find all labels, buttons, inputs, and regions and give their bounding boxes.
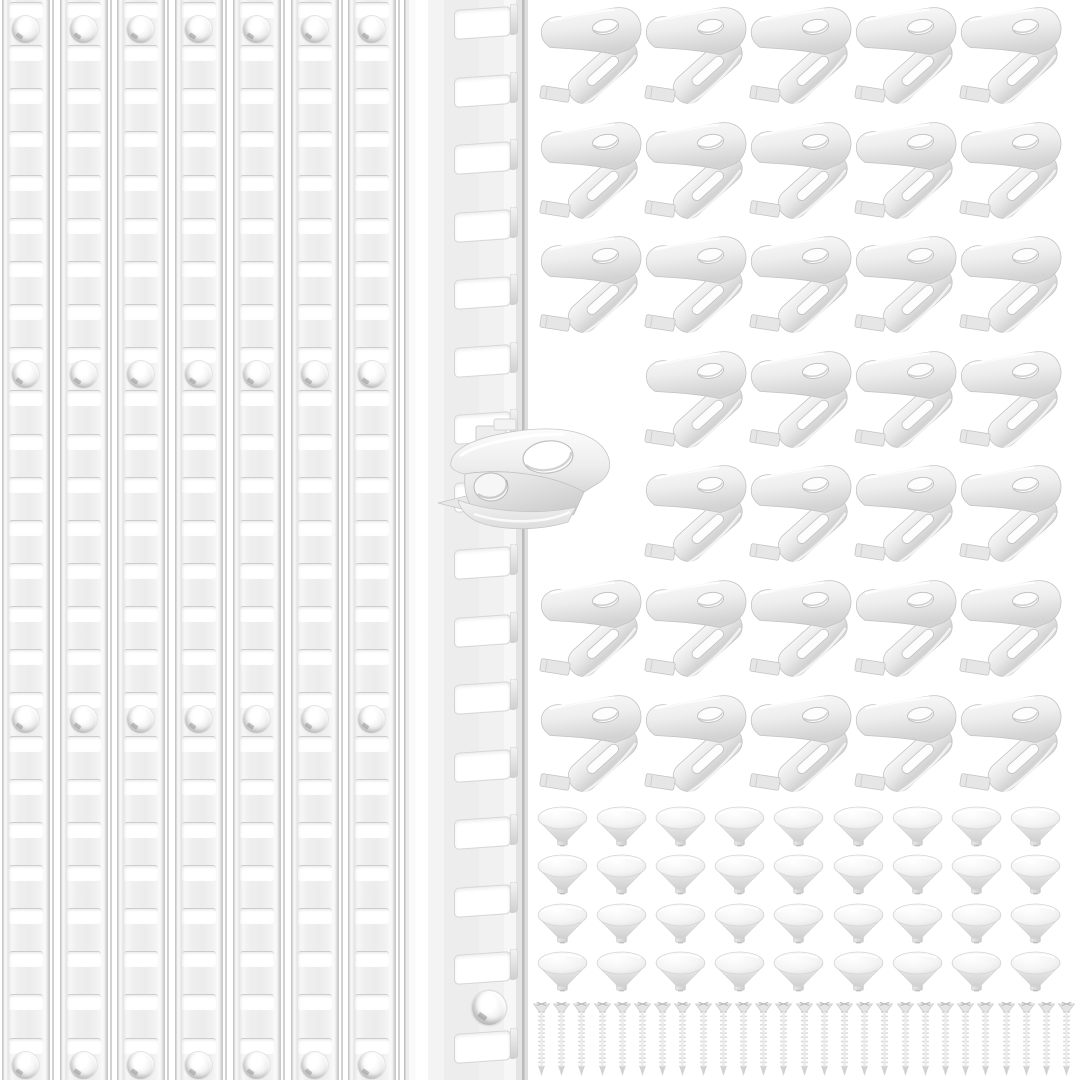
strip-slot xyxy=(67,736,101,751)
screw xyxy=(714,1000,733,1078)
shelf-clip xyxy=(956,577,1064,689)
strip-slot xyxy=(298,994,332,1009)
screw xyxy=(552,1000,571,1078)
strip-slot xyxy=(9,45,43,60)
strip-slot xyxy=(67,822,101,837)
strip-slot xyxy=(9,779,43,794)
screw xyxy=(593,1000,612,1078)
strip-slot xyxy=(9,175,43,190)
strip-slot xyxy=(9,390,43,405)
pin-support xyxy=(1008,903,1063,947)
strip-slot xyxy=(9,994,43,1009)
shelf-clip xyxy=(851,233,959,345)
screw xyxy=(613,1000,632,1078)
strip-slot xyxy=(124,994,158,1009)
strip-slot xyxy=(124,779,158,794)
strip-slot xyxy=(9,88,43,103)
strip-slot xyxy=(124,865,158,880)
strip-slot xyxy=(124,304,158,319)
pin-support xyxy=(1008,806,1063,850)
strip-slot xyxy=(182,908,216,923)
strip-slot xyxy=(124,2,158,17)
strip-slot xyxy=(67,1038,101,1053)
featured-strip-slot xyxy=(454,344,511,378)
strip-slot xyxy=(355,606,389,621)
strip-slot xyxy=(9,649,43,664)
strip-screw-hole xyxy=(243,361,270,388)
screw xyxy=(896,1000,915,1078)
strip-slot xyxy=(240,434,274,449)
strip-screw-hole xyxy=(358,706,385,733)
strip-slot xyxy=(67,261,101,276)
strip-slot xyxy=(9,2,43,17)
strip-slot xyxy=(298,2,332,17)
screw xyxy=(633,1000,652,1078)
featured-strip-slot xyxy=(454,749,511,783)
strip-slot xyxy=(355,649,389,664)
strip-slot xyxy=(9,1038,43,1053)
strip-slot xyxy=(67,175,101,190)
strip-slot xyxy=(182,390,216,405)
strip-slot xyxy=(355,477,389,492)
strip-slot xyxy=(298,563,332,578)
strip-slot xyxy=(355,951,389,966)
featured-pilaster-strip xyxy=(404,0,528,1080)
strip-slot xyxy=(182,822,216,837)
strip-slot xyxy=(240,131,274,146)
screw xyxy=(1057,1000,1076,1078)
shelf-clip xyxy=(956,233,1064,345)
strip-slot xyxy=(298,649,332,664)
strip-slot xyxy=(182,994,216,1009)
strip-slot xyxy=(124,45,158,60)
strip-slot xyxy=(182,779,216,794)
pin-support xyxy=(831,951,886,995)
strip-slot xyxy=(298,261,332,276)
strip-slot xyxy=(182,347,216,362)
pin-support xyxy=(535,854,590,898)
shelf-clip xyxy=(851,692,959,804)
featured-strip-slot xyxy=(454,546,511,580)
screw xyxy=(976,1000,995,1078)
strip-slot xyxy=(124,218,158,233)
pin-support xyxy=(653,854,708,898)
strip-slot xyxy=(182,520,216,535)
strip-slot xyxy=(355,45,389,60)
screw xyxy=(795,1000,814,1078)
screw xyxy=(572,1000,591,1078)
pin-support xyxy=(535,903,590,947)
strip-slot xyxy=(124,434,158,449)
shelf-clip xyxy=(641,462,749,574)
strip-slot xyxy=(67,45,101,60)
strip-slot xyxy=(124,692,158,707)
strip-slot xyxy=(240,649,274,664)
screw xyxy=(916,1000,935,1078)
strip-slot xyxy=(355,2,389,17)
shelf-clip xyxy=(536,4,644,116)
strip-slot xyxy=(9,951,43,966)
pilaster-strip xyxy=(2,0,50,1080)
strip-screw-hole xyxy=(185,706,212,733)
strip-slot xyxy=(355,218,389,233)
strip-slot xyxy=(240,261,274,276)
strip-slot xyxy=(298,520,332,535)
strip-slot xyxy=(240,994,274,1009)
pin-support xyxy=(594,806,649,850)
shelf-clip xyxy=(641,119,749,231)
shelf-clip xyxy=(746,119,854,231)
shelf-clip xyxy=(641,233,749,345)
strip-slot xyxy=(182,865,216,880)
strip-slot xyxy=(298,131,332,146)
strip-slot xyxy=(355,347,389,362)
strip-screw-hole xyxy=(301,1052,328,1079)
strip-slot xyxy=(124,563,158,578)
pin-support xyxy=(712,903,767,947)
strip-slot xyxy=(124,175,158,190)
pin-support xyxy=(890,903,945,947)
strip-screw-hole xyxy=(243,16,270,43)
strip-screw-hole xyxy=(243,706,270,733)
featured-strip-screw-hole xyxy=(472,991,506,1025)
strip-slot xyxy=(355,779,389,794)
strip-slot xyxy=(240,736,274,751)
shelf-clip xyxy=(851,4,959,116)
shelf-clip xyxy=(746,692,854,804)
shelf-clip xyxy=(851,462,959,574)
pin-support xyxy=(712,854,767,898)
shelf-clip xyxy=(536,692,644,804)
pilaster-strip xyxy=(60,0,108,1080)
strip-slot xyxy=(355,563,389,578)
shelf-clip xyxy=(746,4,854,116)
screw xyxy=(835,1000,854,1078)
shelf-clip xyxy=(956,4,1064,116)
strip-slot xyxy=(298,390,332,405)
strip-slot xyxy=(9,606,43,621)
strip-slot xyxy=(240,347,274,362)
strip-slot xyxy=(240,218,274,233)
strip-slot xyxy=(9,736,43,751)
screw xyxy=(532,1000,551,1078)
shelf-clip xyxy=(641,348,749,460)
strip-slot xyxy=(355,736,389,751)
strip-slot xyxy=(298,951,332,966)
strip-screw-hole xyxy=(70,706,97,733)
featured-strip-slot xyxy=(454,884,511,918)
strip-slot xyxy=(182,304,216,319)
strip-screw-hole xyxy=(12,706,39,733)
strip-slot xyxy=(298,218,332,233)
strip-screw-hole xyxy=(12,16,39,43)
strip-slot xyxy=(9,304,43,319)
pin-support xyxy=(949,854,1004,898)
strip-slot xyxy=(67,994,101,1009)
strip-slot xyxy=(67,131,101,146)
featured-strip-slot xyxy=(454,614,511,648)
pin-support xyxy=(1008,854,1063,898)
strip-slot xyxy=(298,175,332,190)
strip-slot xyxy=(355,908,389,923)
shelf-clip xyxy=(746,577,854,689)
strip-screw-hole xyxy=(12,361,39,388)
screw xyxy=(774,1000,793,1078)
screw xyxy=(734,1000,753,1078)
pin-support xyxy=(535,806,590,850)
shelf-clip xyxy=(536,577,644,689)
strip-slot xyxy=(124,649,158,664)
strip-slot xyxy=(240,1038,274,1053)
pin-support xyxy=(594,854,649,898)
strip-slot xyxy=(182,692,216,707)
strip-slot xyxy=(67,692,101,707)
strip-screw-hole xyxy=(358,16,385,43)
featured-strip-slot xyxy=(454,6,511,40)
strip-slot xyxy=(67,951,101,966)
strip-slot xyxy=(298,434,332,449)
strip-screw-hole xyxy=(127,706,154,733)
pin-support xyxy=(890,951,945,995)
strip-slot xyxy=(182,563,216,578)
strip-slot xyxy=(67,477,101,492)
shelf-clip xyxy=(956,692,1064,804)
pin-support xyxy=(594,951,649,995)
screw xyxy=(673,1000,692,1078)
featured-strip-slot xyxy=(454,141,511,175)
shelf-clip xyxy=(956,348,1064,460)
strip-slot xyxy=(298,1038,332,1053)
shelf-clip xyxy=(851,348,959,460)
strip-slot xyxy=(182,131,216,146)
shelf-clip xyxy=(851,577,959,689)
strip-screw-hole xyxy=(127,361,154,388)
strip-screw-hole xyxy=(185,16,212,43)
strip-slot xyxy=(124,822,158,837)
screw xyxy=(997,1000,1016,1078)
strip-slot xyxy=(240,45,274,60)
strip-slot xyxy=(67,865,101,880)
strip-slot xyxy=(67,606,101,621)
strip-slot xyxy=(298,779,332,794)
strip-slot xyxy=(182,88,216,103)
strip-slot xyxy=(67,649,101,664)
strip-slot xyxy=(124,261,158,276)
strip-slot xyxy=(182,45,216,60)
strip-slot xyxy=(240,2,274,17)
featured-strip-slot xyxy=(454,951,511,985)
strip-slot xyxy=(298,822,332,837)
strip-slot xyxy=(9,131,43,146)
strip-slot xyxy=(67,304,101,319)
attached-shelf-clip xyxy=(434,414,620,538)
pin-support xyxy=(949,903,1004,947)
pin-support xyxy=(594,903,649,947)
strip-slot xyxy=(124,951,158,966)
shelf-clip xyxy=(641,4,749,116)
strip-slot xyxy=(182,1038,216,1053)
strip-slot xyxy=(9,347,43,362)
strip-slot xyxy=(9,563,43,578)
screw xyxy=(1037,1000,1056,1078)
strip-slot xyxy=(355,175,389,190)
strip-slot xyxy=(355,88,389,103)
strip-slot xyxy=(240,951,274,966)
pin-support xyxy=(535,951,590,995)
shelf-clip xyxy=(956,119,1064,231)
strip-slot xyxy=(355,994,389,1009)
strip-slot xyxy=(298,304,332,319)
strip-slot xyxy=(355,390,389,405)
featured-strip-slot xyxy=(454,1030,511,1064)
featured-strip-slot xyxy=(454,74,511,108)
strip-slot xyxy=(240,175,274,190)
strip-slot xyxy=(67,2,101,17)
strip-slot xyxy=(67,390,101,405)
strip-slot xyxy=(9,865,43,880)
strip-slot xyxy=(298,692,332,707)
strip-slot xyxy=(182,261,216,276)
strip-slot xyxy=(240,477,274,492)
pin-support xyxy=(949,951,1004,995)
pin-support xyxy=(712,806,767,850)
strip-slot xyxy=(67,520,101,535)
strip-slot xyxy=(355,865,389,880)
strip-slot xyxy=(355,434,389,449)
screw xyxy=(694,1000,713,1078)
strip-slot xyxy=(9,477,43,492)
product-photo xyxy=(0,0,1077,1080)
screw xyxy=(754,1000,773,1078)
pin-support xyxy=(831,854,886,898)
strip-slot xyxy=(298,45,332,60)
strip-slot xyxy=(124,908,158,923)
strip-slot xyxy=(298,347,332,362)
pin-support xyxy=(771,951,826,995)
pilaster-strip xyxy=(117,0,165,1080)
shelf-clip xyxy=(536,233,644,345)
pin-support xyxy=(1008,951,1063,995)
strip-slot xyxy=(124,390,158,405)
screw xyxy=(1017,1000,1036,1078)
strip-slot xyxy=(355,822,389,837)
strip-screw-hole xyxy=(12,1052,39,1079)
strip-slot xyxy=(240,304,274,319)
featured-strip-slot xyxy=(454,209,511,243)
strip-slot xyxy=(9,520,43,535)
strip-slot xyxy=(124,606,158,621)
pin-support xyxy=(771,903,826,947)
screw xyxy=(815,1000,834,1078)
strip-screw-hole xyxy=(243,1052,270,1079)
strip-slot xyxy=(182,2,216,17)
strip-slot xyxy=(67,563,101,578)
strip-slot xyxy=(67,88,101,103)
strip-slot xyxy=(124,736,158,751)
pin-support xyxy=(771,806,826,850)
shelf-clip xyxy=(641,692,749,804)
strip-slot xyxy=(355,304,389,319)
strip-slot xyxy=(182,175,216,190)
pin-support xyxy=(653,806,708,850)
strip-slot xyxy=(124,131,158,146)
strip-screw-hole xyxy=(301,706,328,733)
strip-screw-hole xyxy=(127,1052,154,1079)
strip-slot xyxy=(355,692,389,707)
strip-slot xyxy=(124,347,158,362)
strip-slot xyxy=(240,88,274,103)
strip-slot xyxy=(182,951,216,966)
pin-support xyxy=(653,951,708,995)
strip-slot xyxy=(124,1038,158,1053)
featured-strip-slot xyxy=(454,816,511,850)
pin-support xyxy=(949,806,1004,850)
strip-slot xyxy=(240,908,274,923)
strip-slot xyxy=(124,88,158,103)
screw xyxy=(855,1000,874,1078)
strip-slot xyxy=(182,477,216,492)
strip-slot xyxy=(298,88,332,103)
screw xyxy=(936,1000,955,1078)
strip-screw-hole xyxy=(301,16,328,43)
shelf-clip xyxy=(746,462,854,574)
strip-screw-hole xyxy=(185,361,212,388)
shelf-clip xyxy=(536,119,644,231)
strip-screw-hole xyxy=(127,16,154,43)
strip-slot xyxy=(240,390,274,405)
strip-screw-hole xyxy=(185,1052,212,1079)
pilaster-strip xyxy=(291,0,339,1080)
strip-slot xyxy=(182,218,216,233)
strip-slot xyxy=(67,908,101,923)
shelf-clip xyxy=(746,348,854,460)
strip-slot xyxy=(355,131,389,146)
strip-slot xyxy=(67,218,101,233)
pin-support xyxy=(890,806,945,850)
strip-slot xyxy=(240,822,274,837)
strip-slot xyxy=(67,779,101,794)
strip-slot xyxy=(240,779,274,794)
strip-slot xyxy=(124,477,158,492)
shelf-clip xyxy=(851,119,959,231)
strip-slot xyxy=(240,692,274,707)
strip-slot xyxy=(182,606,216,621)
strip-slot xyxy=(240,563,274,578)
strip-screw-hole xyxy=(358,1052,385,1079)
strip-slot xyxy=(182,434,216,449)
pin-support xyxy=(831,903,886,947)
pin-support xyxy=(890,854,945,898)
strip-slot xyxy=(355,261,389,276)
strip-screw-hole xyxy=(70,1052,97,1079)
strip-slot xyxy=(124,520,158,535)
screw xyxy=(956,1000,975,1078)
pilaster-strip xyxy=(233,0,281,1080)
strip-slot xyxy=(182,736,216,751)
strip-slot xyxy=(298,477,332,492)
strip-slot xyxy=(298,908,332,923)
strip-slot xyxy=(9,822,43,837)
strip-screw-hole xyxy=(301,361,328,388)
featured-strip-slot xyxy=(454,681,511,715)
strip-slot xyxy=(240,865,274,880)
strip-screw-hole xyxy=(70,16,97,43)
strip-slot xyxy=(182,649,216,664)
pin-support xyxy=(712,951,767,995)
strip-slot xyxy=(67,434,101,449)
strip-slot xyxy=(9,434,43,449)
strip-screw-hole xyxy=(358,361,385,388)
